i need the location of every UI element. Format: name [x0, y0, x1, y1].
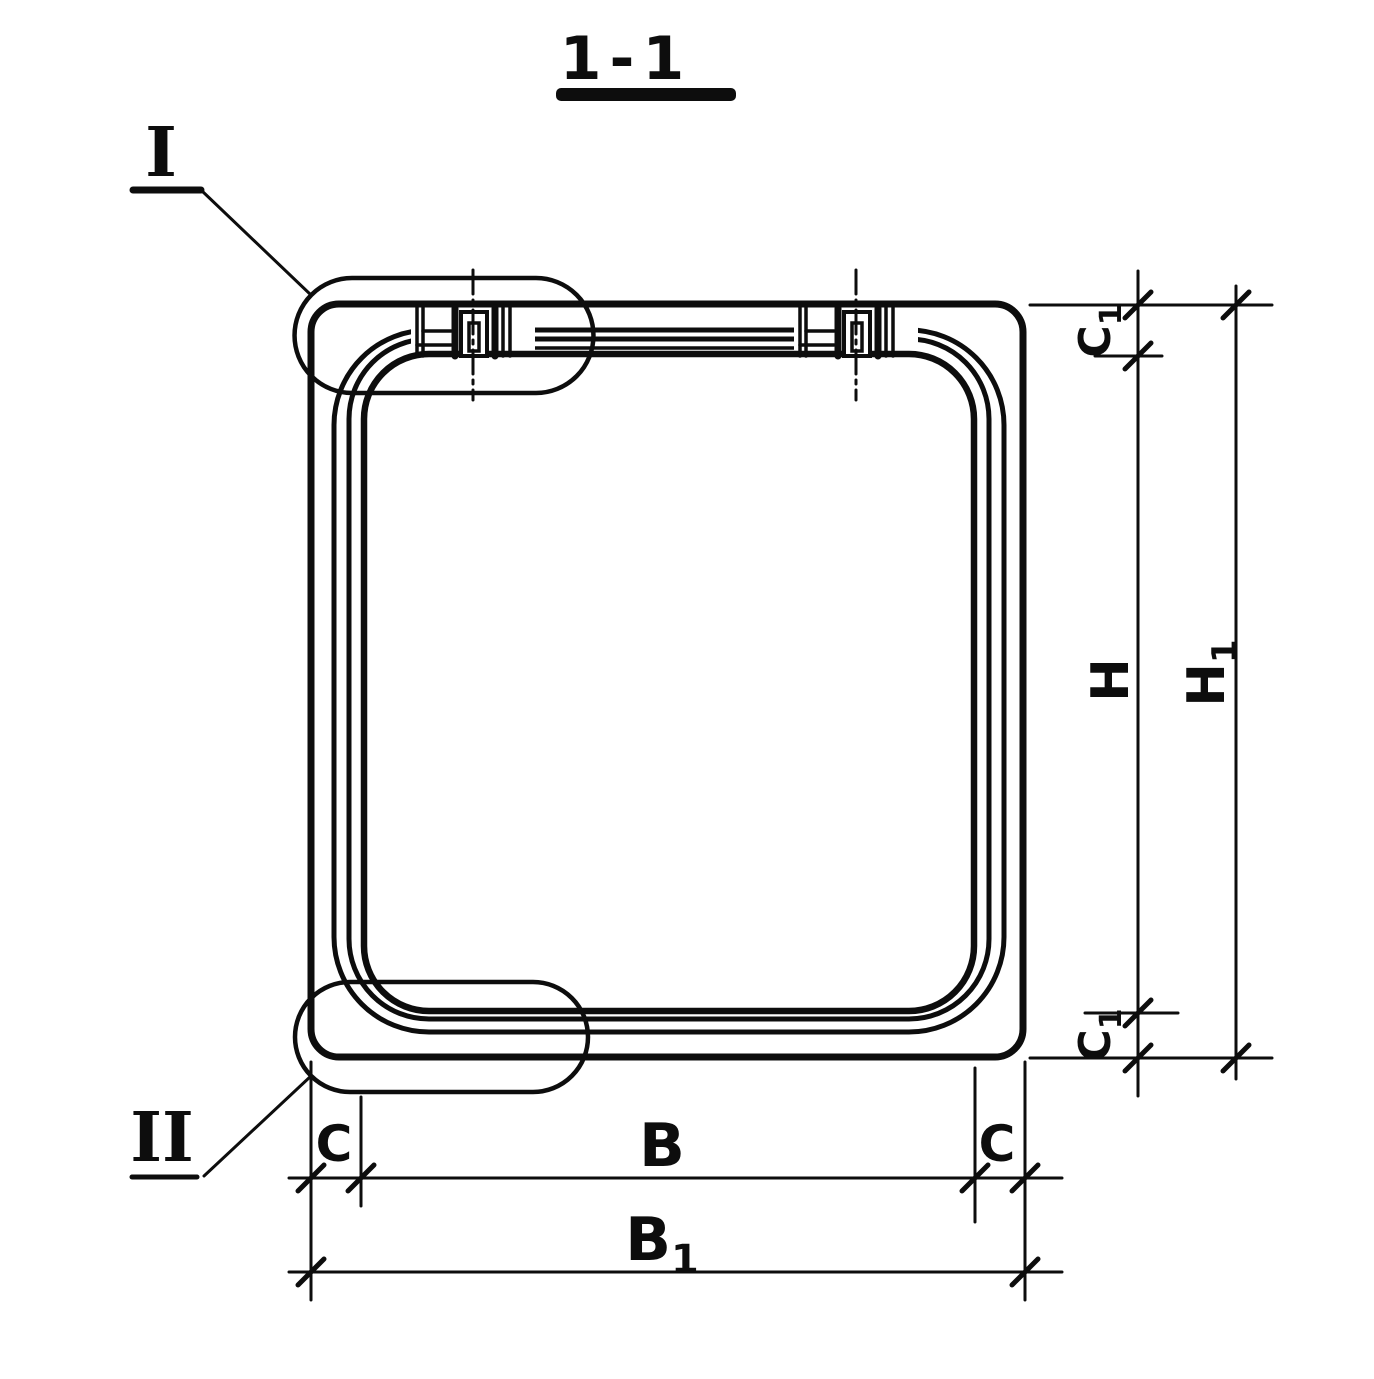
dim-label-b: B	[639, 1111, 685, 1181]
dim-label-c1-bottom: C1	[1070, 1008, 1129, 1061]
detail-ii-circle	[295, 982, 588, 1092]
culvert-section	[311, 270, 1023, 1057]
title-block: 1-1	[556, 24, 736, 101]
lid-joint-left	[411, 270, 535, 400]
lid-joint-right	[794, 270, 918, 400]
middle-contour-outer	[334, 330, 1004, 1032]
section-1-1-drawing: 1-1	[0, 0, 1374, 1379]
drawing-title: 1-1	[560, 24, 692, 94]
detail-ii-label: II	[130, 1098, 194, 1178]
dimensions-bottom: C B C B1	[289, 1062, 1062, 1300]
drawing-sheet: 1-1	[0, 0, 1374, 1379]
title-underline	[556, 88, 736, 101]
dimensions-right: C1 H H1 C1	[1030, 271, 1272, 1096]
dim-label-h: H	[1081, 658, 1141, 702]
middle-contour-inner	[349, 339, 989, 1019]
inner-opening-contour	[364, 354, 974, 1011]
detail-ii-leader	[204, 1076, 311, 1176]
dim-label-c-left: C	[316, 1115, 353, 1173]
dim-label-c-right: C	[979, 1115, 1016, 1173]
dim-label-b1: B1	[625, 1205, 699, 1283]
dim-label-c1-top: C1	[1070, 304, 1129, 357]
outer-contour	[311, 304, 1023, 1057]
detail-i-label: I	[145, 113, 177, 193]
dim-label-h1: H1	[1177, 639, 1245, 706]
detail-i-leader	[201, 190, 311, 295]
